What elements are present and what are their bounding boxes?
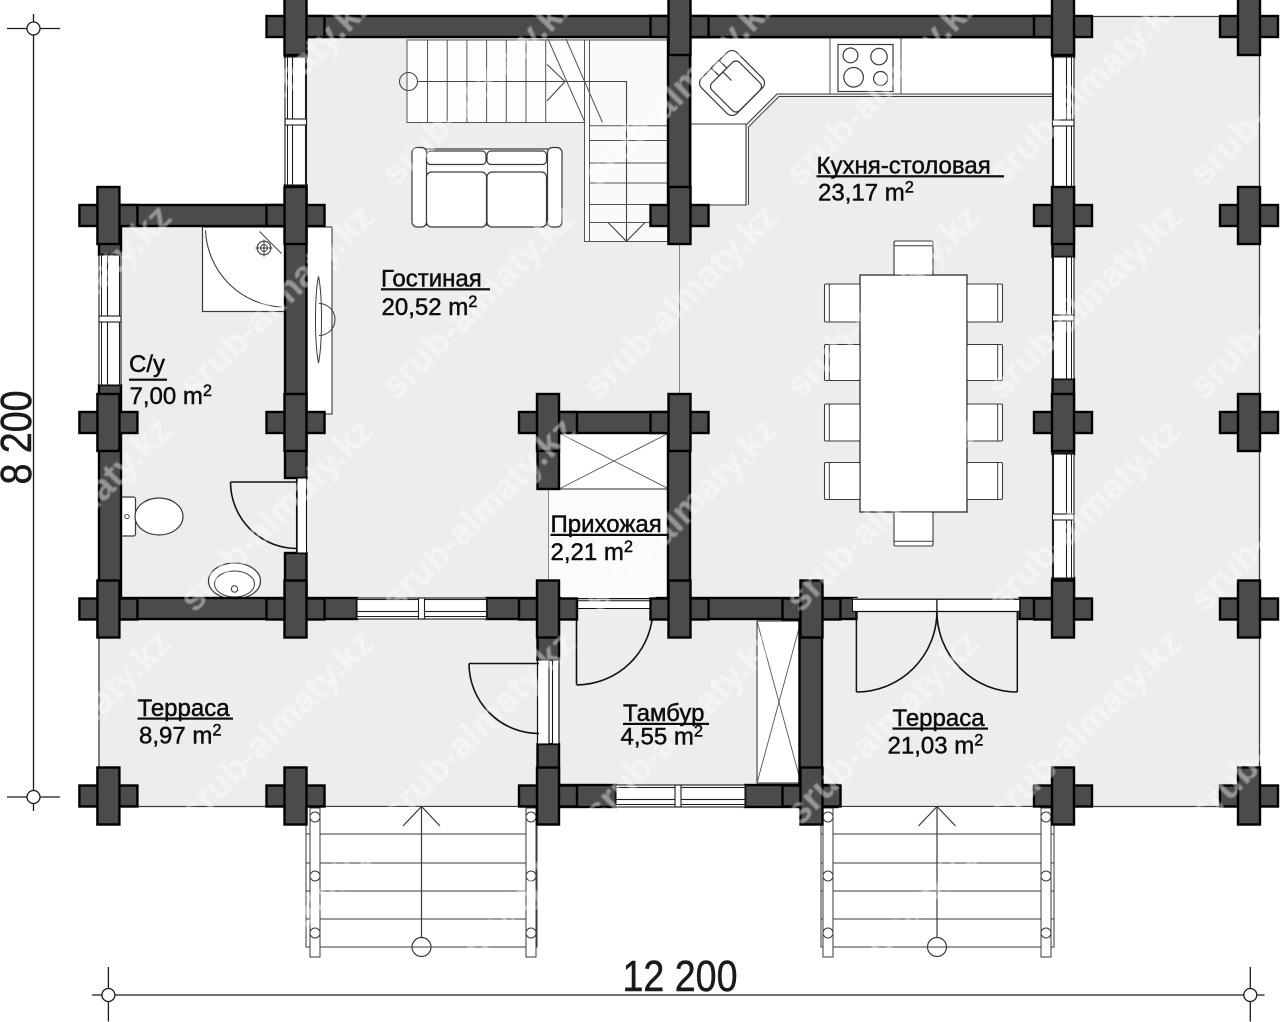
svg-text:4,55 m2: 4,55 m2 xyxy=(621,723,704,751)
svg-text:2,21 m2: 2,21 m2 xyxy=(551,538,634,566)
svg-text:23,17 m2: 23,17 m2 xyxy=(818,179,914,207)
svg-text:20,52 m2: 20,52 m2 xyxy=(382,293,478,321)
svg-text:21,03 m2: 21,03 m2 xyxy=(888,732,984,760)
svg-text:12 200: 12 200 xyxy=(622,951,737,1000)
svg-text:8 200: 8 200 xyxy=(0,390,41,484)
svg-text:С/у: С/у xyxy=(129,351,165,378)
svg-text:8,97 m2: 8,97 m2 xyxy=(139,721,222,749)
svg-text:7,00 m2: 7,00 m2 xyxy=(130,382,213,410)
